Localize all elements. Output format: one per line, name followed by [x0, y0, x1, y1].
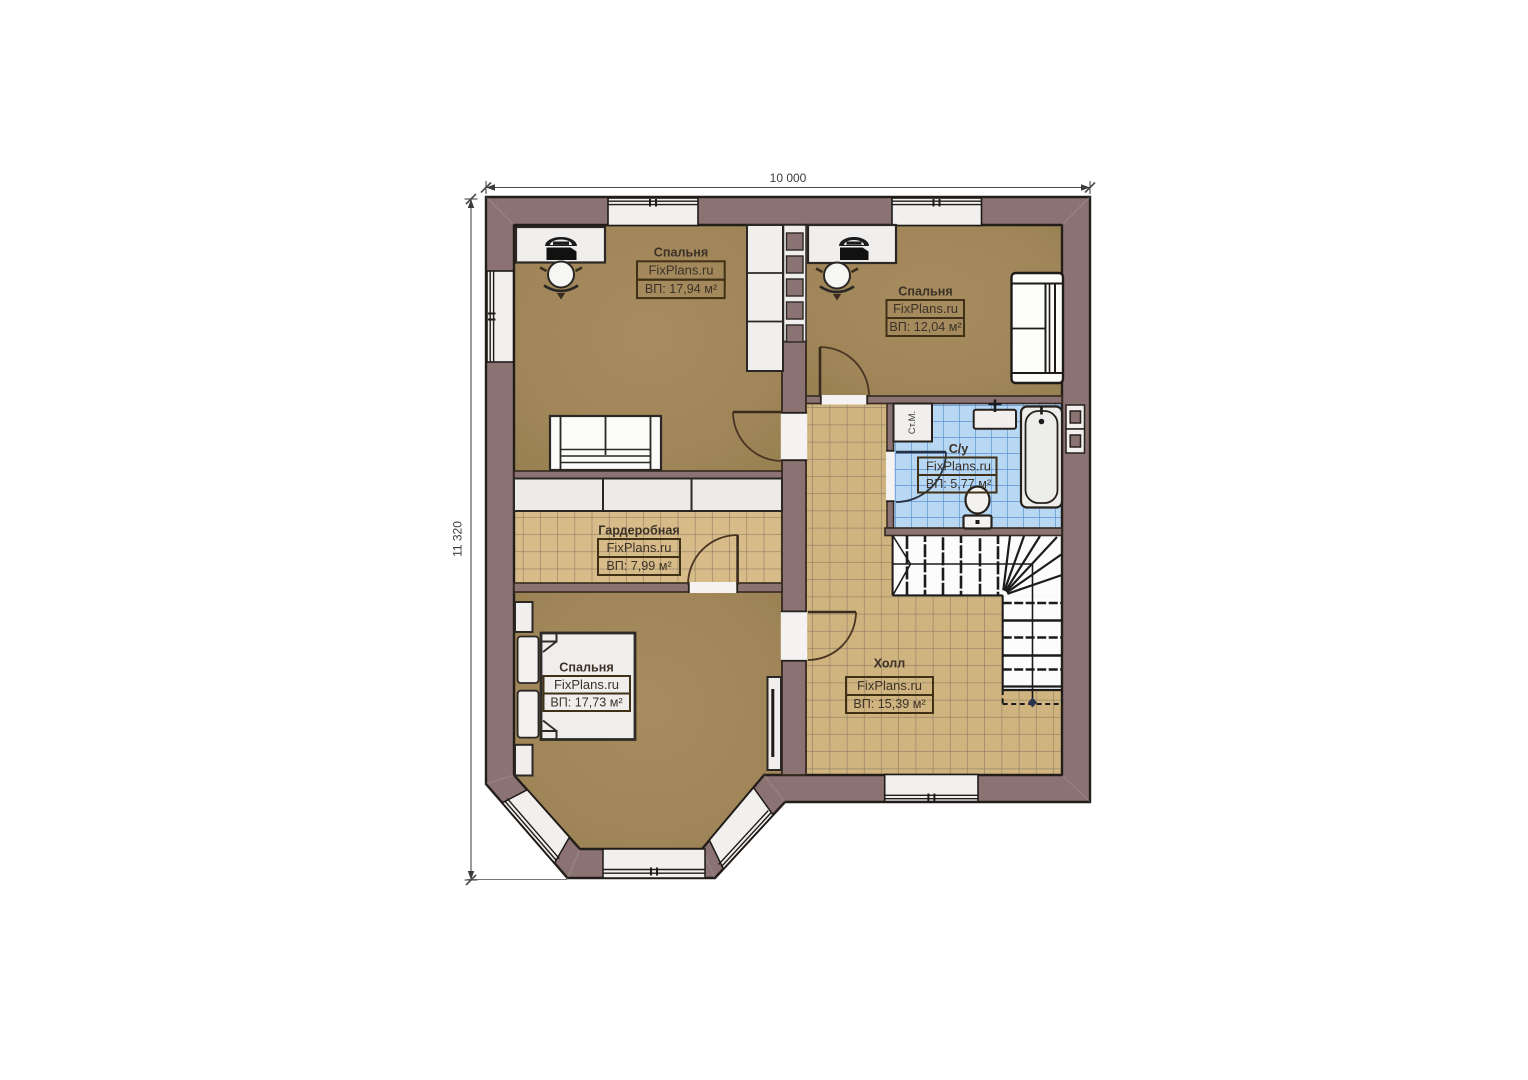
svg-text:ВП: 7,99 м²: ВП: 7,99 м²: [606, 559, 671, 573]
svg-text:ВП: 17,94 м²: ВП: 17,94 м²: [645, 282, 717, 296]
svg-text:10 000: 10 000: [770, 171, 807, 185]
svg-text:Ст.М.: Ст.М.: [907, 411, 918, 434]
svg-text:11 320: 11 320: [451, 521, 465, 557]
svg-text:Спальня: Спальня: [898, 285, 952, 299]
svg-text:FixPlans.ru: FixPlans.ru: [554, 677, 619, 692]
svg-text:Холл: Холл: [874, 657, 906, 671]
svg-text:FixPlans.ru: FixPlans.ru: [893, 301, 958, 316]
svg-text:Спальня: Спальня: [559, 661, 613, 675]
svg-text:С/у: С/у: [949, 442, 969, 456]
svg-text:Спальня: Спальня: [654, 246, 708, 260]
svg-text:FixPlans.ru: FixPlans.ru: [926, 458, 991, 473]
svg-text:ВП: 5,77 м²: ВП: 5,77 м²: [926, 477, 991, 491]
svg-text:ВП: 17,73 м²: ВП: 17,73 м²: [550, 695, 622, 709]
svg-text:Гардеробная: Гардеробная: [598, 524, 679, 538]
svg-text:ВП: 12,04 м²: ВП: 12,04 м²: [889, 320, 961, 334]
svg-text:FixPlans.ru: FixPlans.ru: [606, 540, 671, 555]
svg-text:FixPlans.ru: FixPlans.ru: [648, 263, 713, 278]
svg-text:FixPlans.ru: FixPlans.ru: [857, 678, 922, 693]
svg-text:ВП: 15,39 м²: ВП: 15,39 м²: [853, 697, 925, 711]
